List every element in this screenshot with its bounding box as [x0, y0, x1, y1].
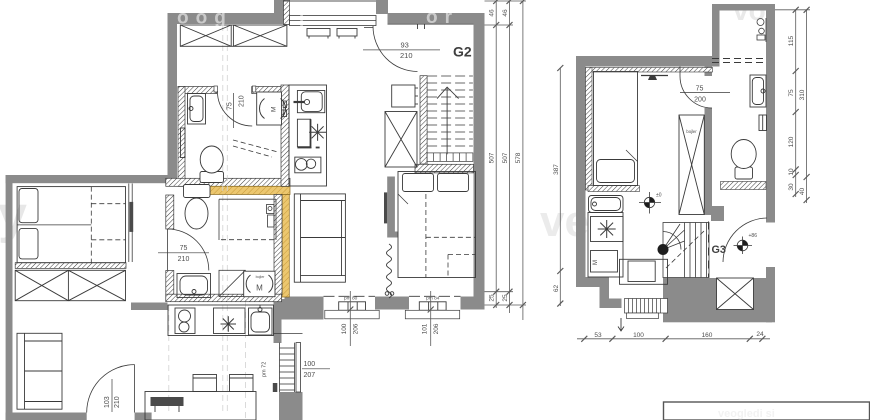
svg-text:46: 46	[502, 9, 509, 17]
svg-text:M: M	[271, 107, 278, 112]
svg-text:210: 210	[400, 51, 413, 60]
svg-text:507: 507	[489, 152, 496, 163]
svg-text:62: 62	[553, 285, 560, 293]
svg-text:100: 100	[304, 361, 316, 368]
svg-text:pm 72: pm 72	[262, 362, 268, 377]
svg-text:206: 206	[353, 323, 360, 334]
svg-text:pm 84: pm 84	[426, 296, 440, 302]
svg-text:210: 210	[114, 396, 121, 408]
svg-text:10: 10	[788, 168, 795, 176]
svg-text:387: 387	[553, 164, 560, 175]
svg-text:or: or	[426, 7, 459, 28]
svg-text:G3: G3	[712, 244, 726, 256]
svg-text:y: y	[0, 186, 27, 244]
svg-text:25: 25	[502, 294, 509, 302]
svg-text:±0: ±0	[656, 193, 662, 199]
svg-text:75: 75	[696, 86, 704, 93]
svg-text:206: 206	[433, 323, 440, 334]
svg-text:100: 100	[633, 332, 644, 339]
svg-text:pm 80: pm 80	[344, 296, 358, 302]
svg-text:101: 101	[422, 323, 429, 334]
svg-text:75: 75	[227, 102, 234, 110]
svg-text:120: 120	[788, 136, 795, 147]
svg-text:M: M	[593, 260, 599, 265]
svg-text:53: 53	[594, 332, 602, 339]
svg-text:210: 210	[239, 95, 246, 107]
svg-text:24: 24	[756, 331, 764, 338]
svg-text:75: 75	[180, 245, 188, 252]
svg-text:46: 46	[489, 9, 496, 17]
svg-text:100: 100	[341, 323, 348, 334]
svg-text:200: 200	[694, 97, 706, 104]
svg-text:j: j	[298, 9, 311, 30]
svg-text:bojler: bojler	[686, 129, 697, 134]
svg-text:30: 30	[788, 183, 795, 191]
svg-text:veogledi si: veogledi si	[718, 408, 775, 420]
svg-text:207: 207	[304, 372, 316, 379]
svg-text:507: 507	[502, 152, 509, 163]
svg-text:M: M	[256, 284, 263, 293]
svg-text:75: 75	[788, 89, 795, 97]
svg-text:115: 115	[788, 35, 795, 46]
svg-text:160: 160	[702, 332, 713, 339]
svg-text:578: 578	[515, 152, 522, 163]
svg-text:oog: oog	[177, 8, 233, 29]
svg-text:+86: +86	[749, 233, 758, 239]
svg-text:103: 103	[104, 396, 111, 408]
svg-text:bojler: bojler	[256, 275, 266, 279]
svg-text:vo: vo	[733, 0, 766, 26]
svg-text:25: 25	[489, 294, 496, 302]
svg-text:210: 210	[178, 256, 190, 263]
svg-text:G2: G2	[453, 44, 472, 60]
svg-text:310: 310	[799, 89, 806, 100]
svg-text:93: 93	[401, 41, 409, 50]
svg-text:40: 40	[799, 188, 806, 196]
